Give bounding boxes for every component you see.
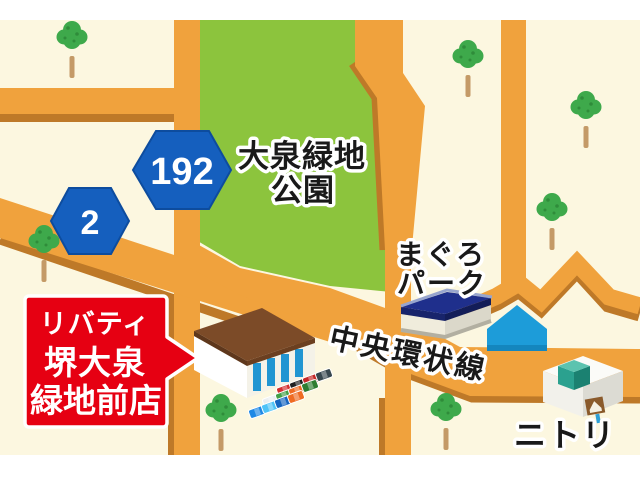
bottom-margin — [0, 455, 640, 480]
road-left-vertical — [174, 20, 200, 455]
route-badge-2: 2 — [51, 188, 129, 254]
road-top-horizontal — [0, 88, 198, 114]
route-number-2: 2 — [81, 204, 100, 242]
nitori-logo-cube-icon — [558, 360, 590, 390]
store-sign-line1: リバティ — [40, 309, 150, 339]
store-map-svg: 192 2 大泉緑地 公園 まぐろ パーク 中央環状線 ニトリ リバティ 堺大泉… — [0, 0, 640, 480]
top-margin — [0, 0, 640, 20]
park-label-line1: 大泉緑地 — [238, 139, 366, 174]
route-number-192: 192 — [150, 151, 213, 193]
store-area-map: 192 2 大泉緑地 公園 まぐろ パーク 中央環状線 ニトリ リバティ 堺大泉… — [0, 0, 640, 480]
nitori-label: ニトリ — [514, 417, 616, 453]
store-sign-line2: 堺大泉 — [44, 344, 146, 381]
maguro-park-label-line2: パーク — [397, 268, 487, 299]
park-label-line2: 公園 — [271, 173, 335, 208]
road-right-vertical — [501, 20, 526, 290]
maguro-park-label-line1: まぐろ — [396, 239, 486, 270]
store-sign-line3: 緑地前店 — [30, 382, 162, 419]
